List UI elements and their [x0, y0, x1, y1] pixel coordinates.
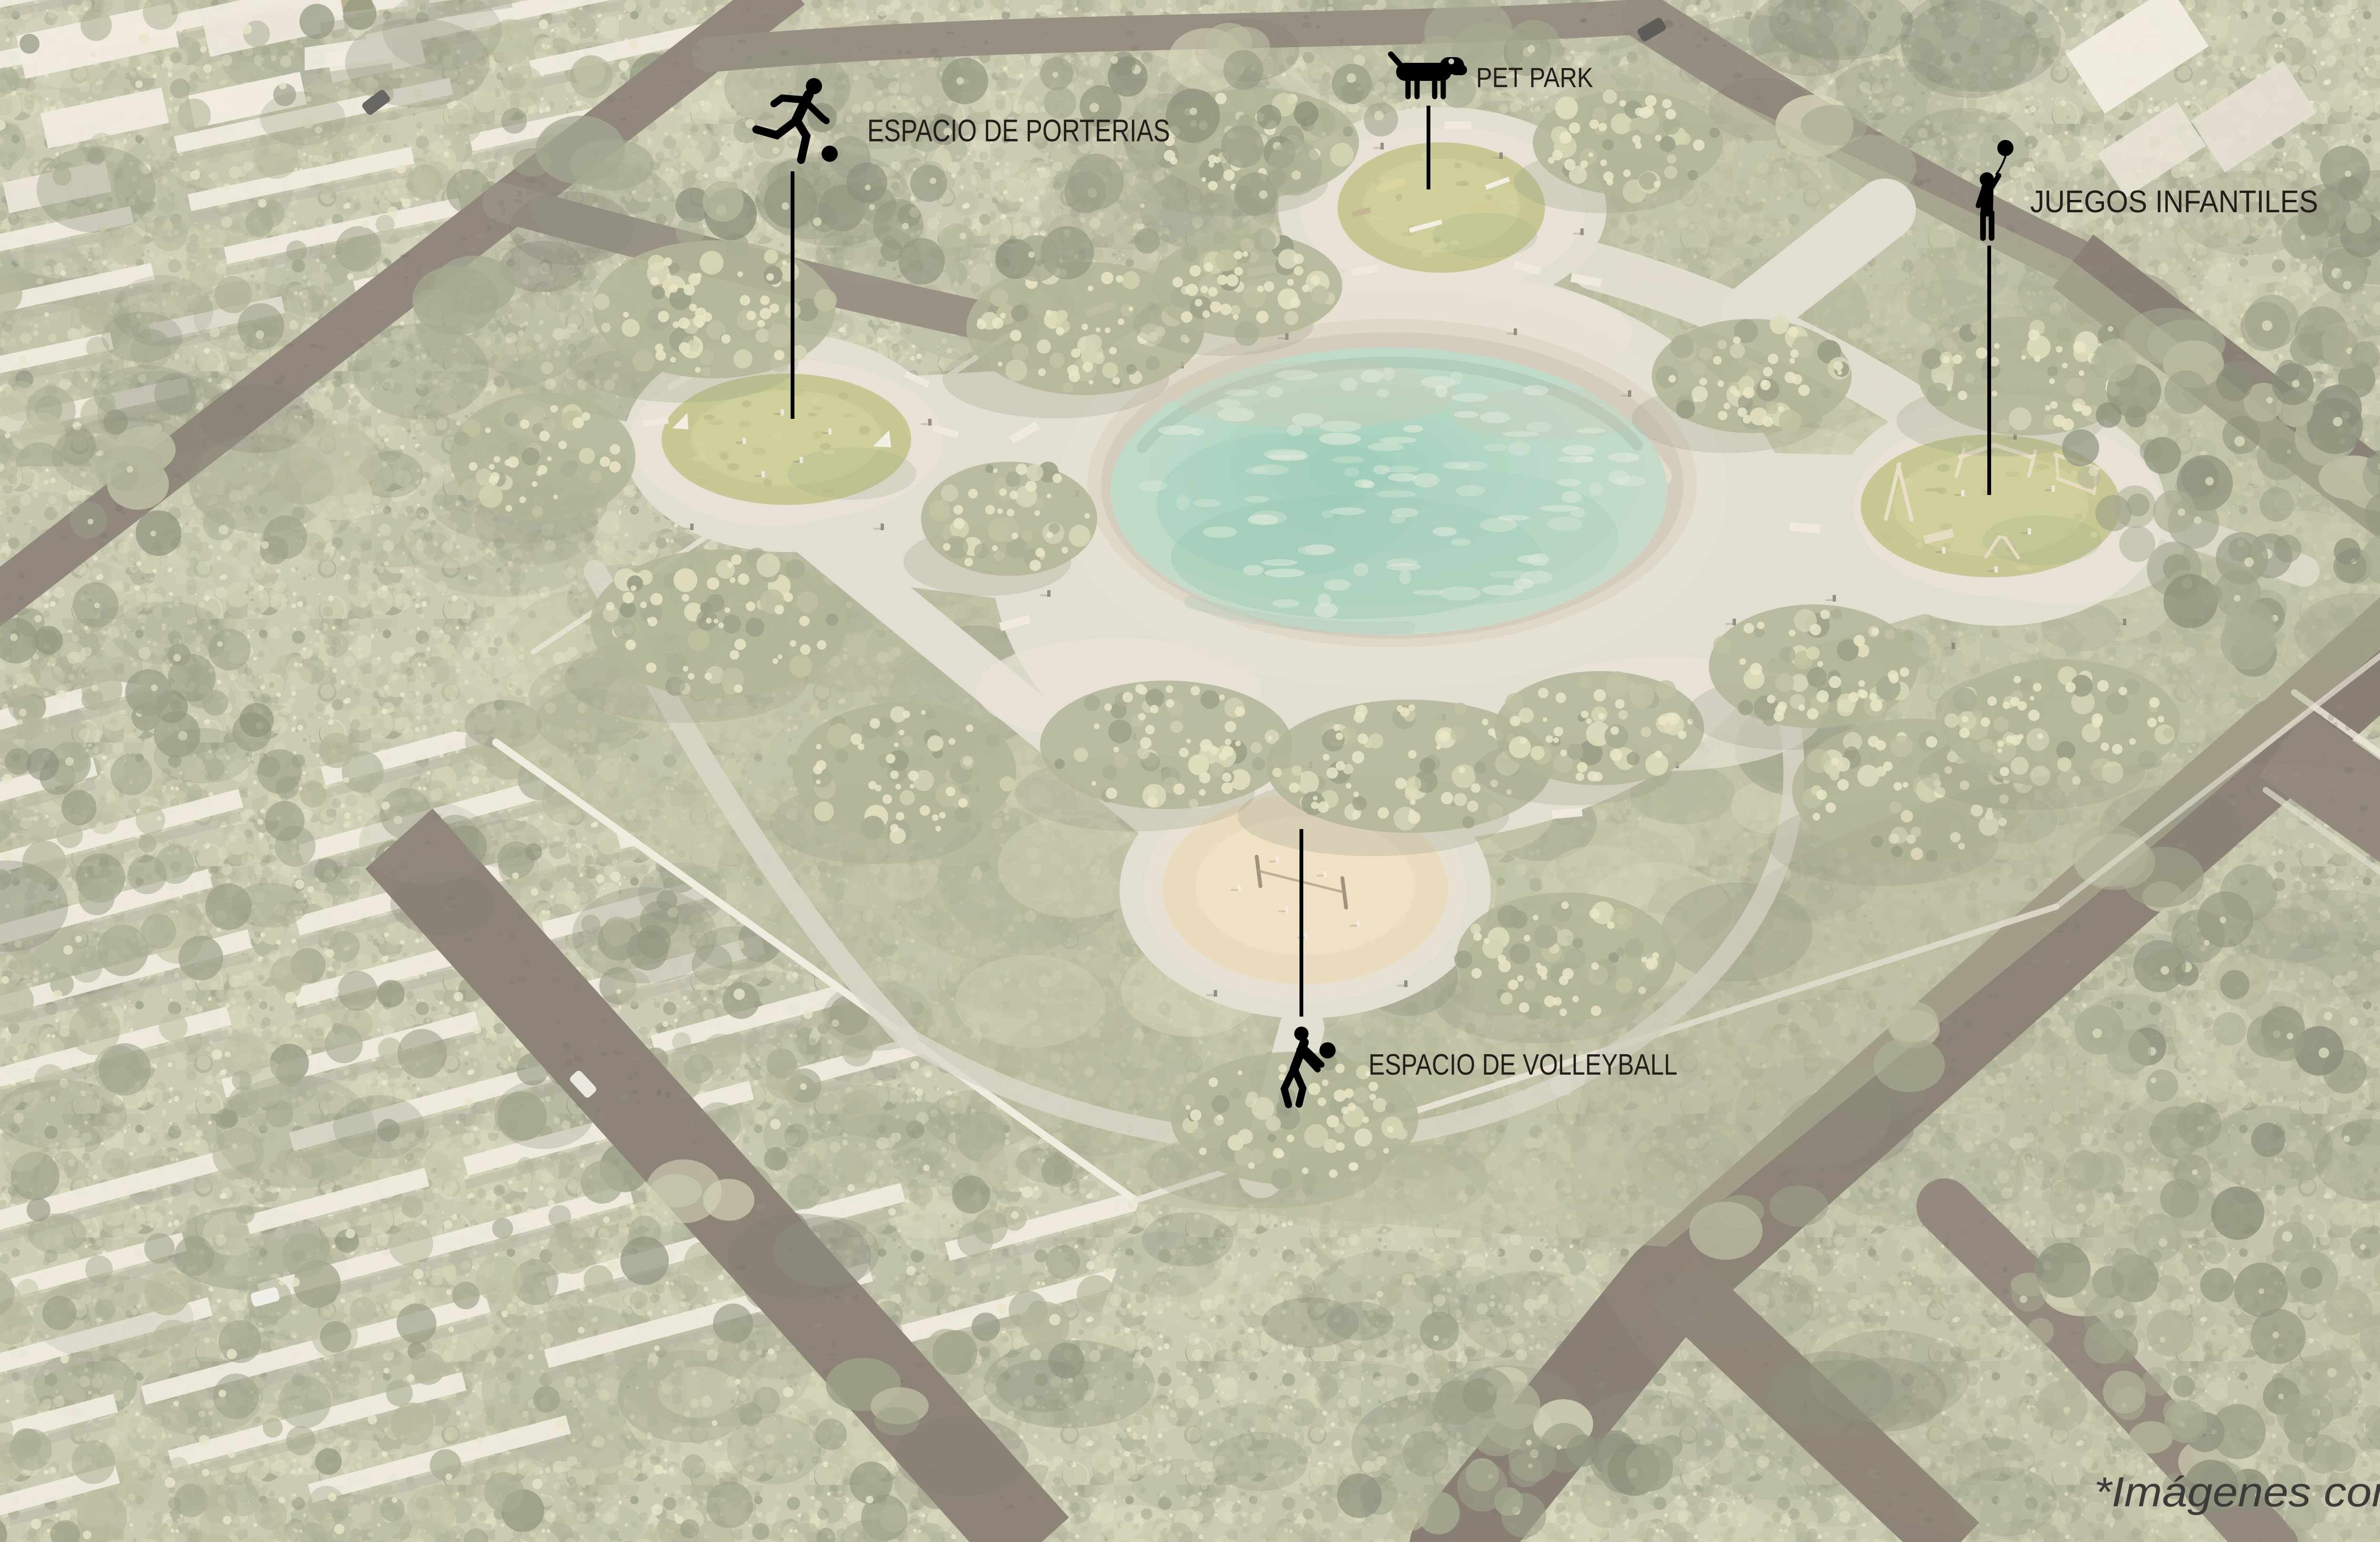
svg-text:*Imágenes con fines ilustrativ: *Imágenes con fines ilustrativos — [2094, 1468, 2380, 1515]
svg-text:ESPACIO DE PORTERIAS: ESPACIO DE PORTERIAS — [867, 113, 1170, 148]
svg-text:ESPACIO DE VOLLEYBALL: ESPACIO DE VOLLEYBALL — [1368, 1048, 1677, 1081]
svg-text:PET PARK: PET PARK — [1476, 62, 1593, 93]
svg-text:JUEGOS INFANTILES: JUEGOS INFANTILES — [2030, 184, 2318, 219]
